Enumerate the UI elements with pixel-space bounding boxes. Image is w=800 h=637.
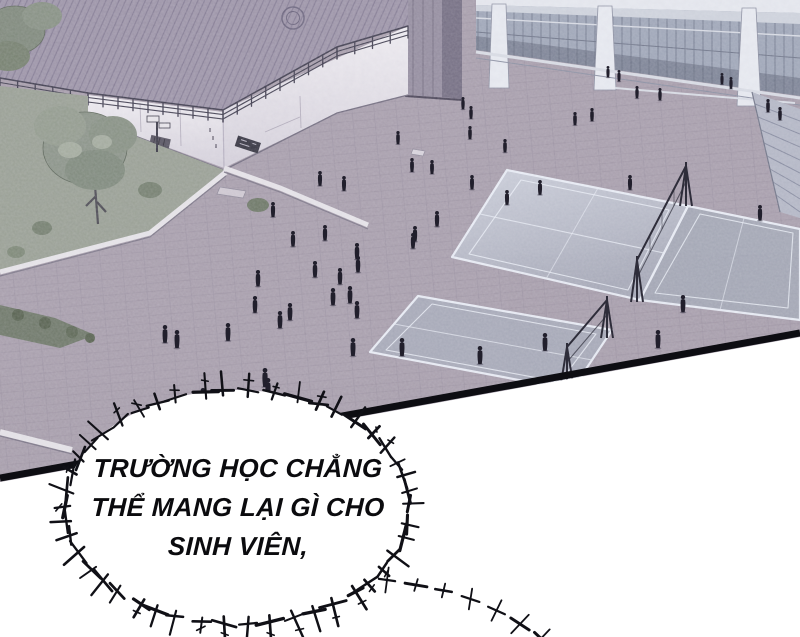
comic-page: TRƯỜNG HỌC CHẲNG THỂ MANG LẠI GÌ CHO SIN… (0, 0, 800, 637)
bubble-line-3: SINH VIÊN, (61, 527, 414, 566)
speech-bubble-text: TRƯỜNG HỌC CHẲNG THỂ MANG LẠI GÌ CHO SIN… (62, 449, 414, 566)
bubble-line-1: TRƯỜNG HỌC CHẲNG (61, 449, 414, 488)
bubble-line-2: THỂ MANG LẠI GÌ CHO (61, 488, 414, 527)
